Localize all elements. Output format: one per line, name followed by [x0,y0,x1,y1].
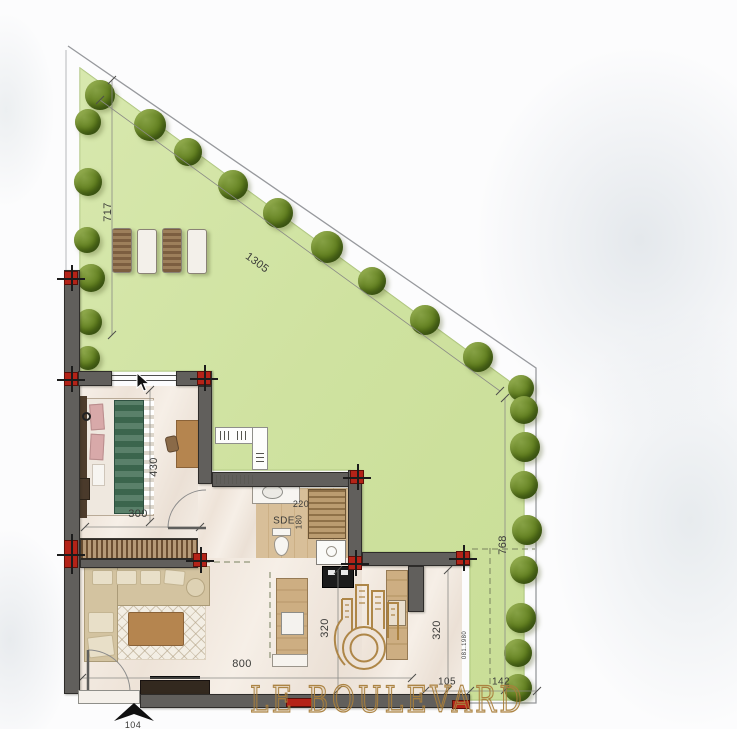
room-label-sde: SDE [273,516,295,527]
dim-430: 430 [148,457,160,477]
entrance-arrow [112,702,156,722]
dim-1305: 1305 [243,250,271,275]
dim-768: 768 [497,535,509,555]
mouse-cursor [136,372,152,394]
dim-180: 180 [295,515,304,530]
dim-320-patio: 320 [431,620,443,640]
floor-plan-canvas: 7171305768430300220SDE180800320320105142… [0,0,737,729]
boundary-ref-label: 081.1980 [462,631,468,659]
dim-220: 220 [293,499,309,509]
brand-logo-icon [328,574,408,676]
dim-717: 717 [102,202,114,222]
brand-wordmark: LE BOULEVARD [250,679,525,721]
dim-800: 800 [232,658,252,670]
dim-300: 300 [128,508,148,520]
